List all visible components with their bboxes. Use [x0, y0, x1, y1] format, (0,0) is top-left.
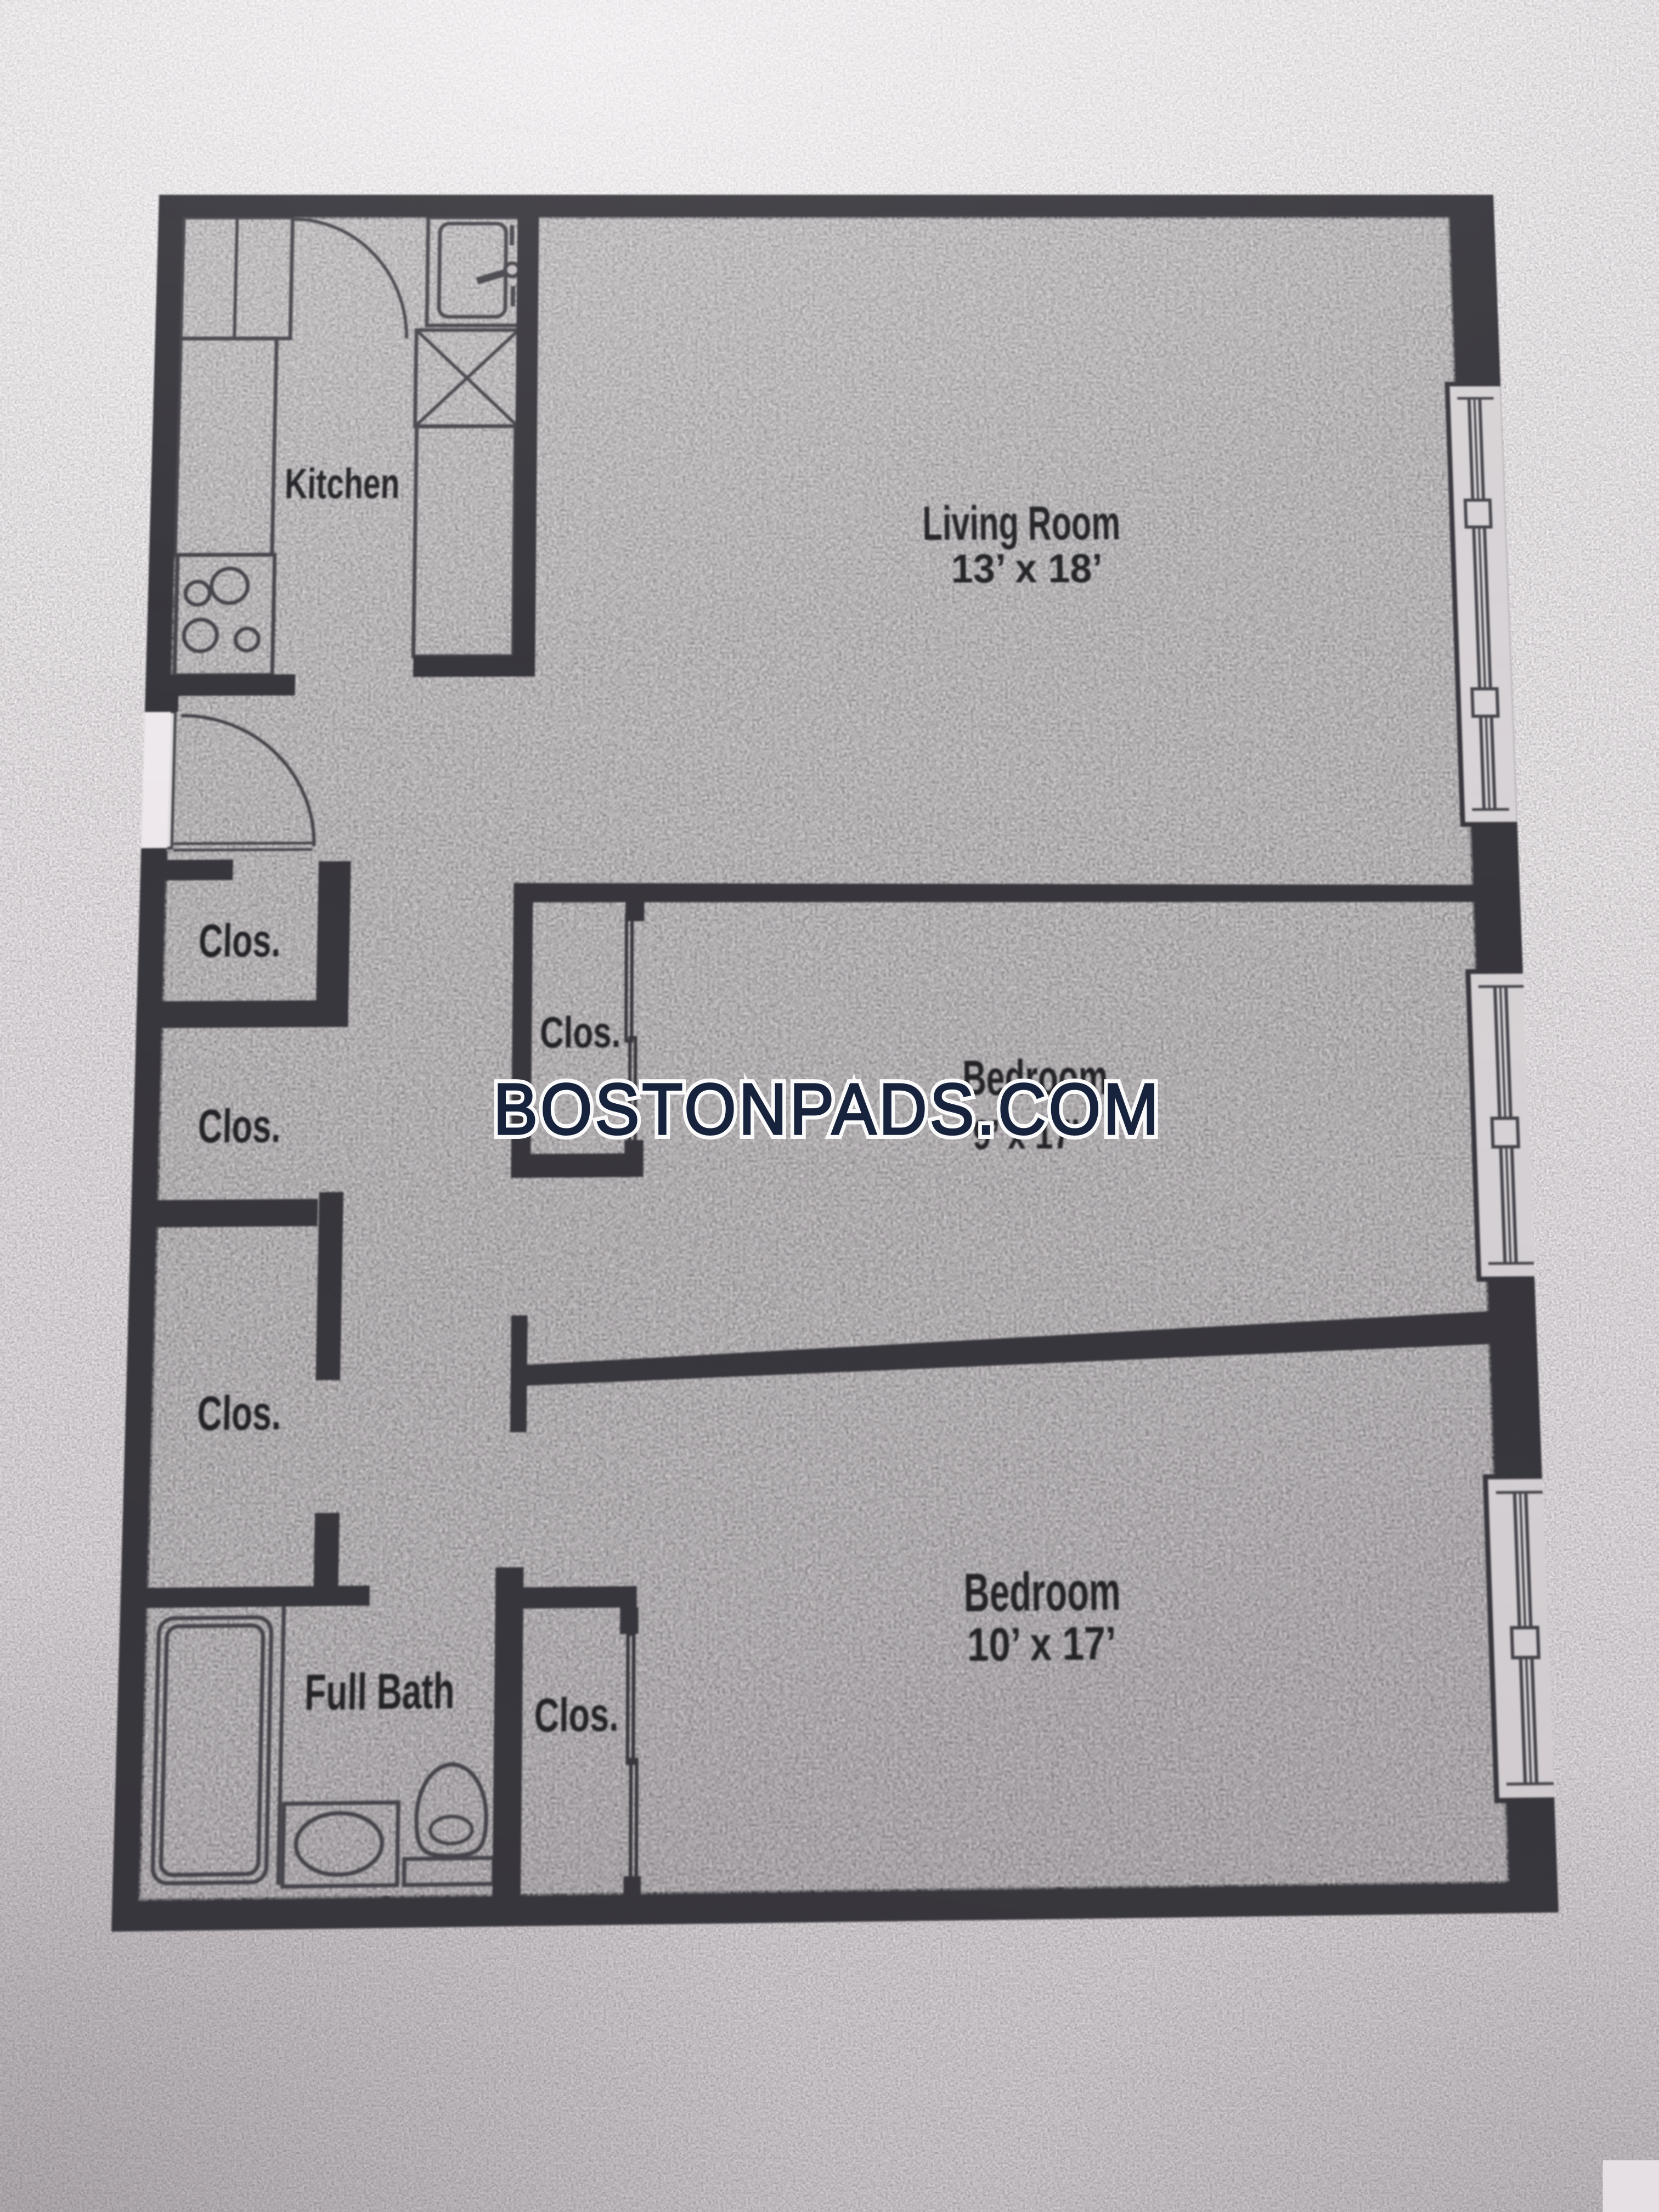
svg-text:BOSTONPADS.COM: BOSTONPADS.COM: [493, 1069, 1161, 1149]
